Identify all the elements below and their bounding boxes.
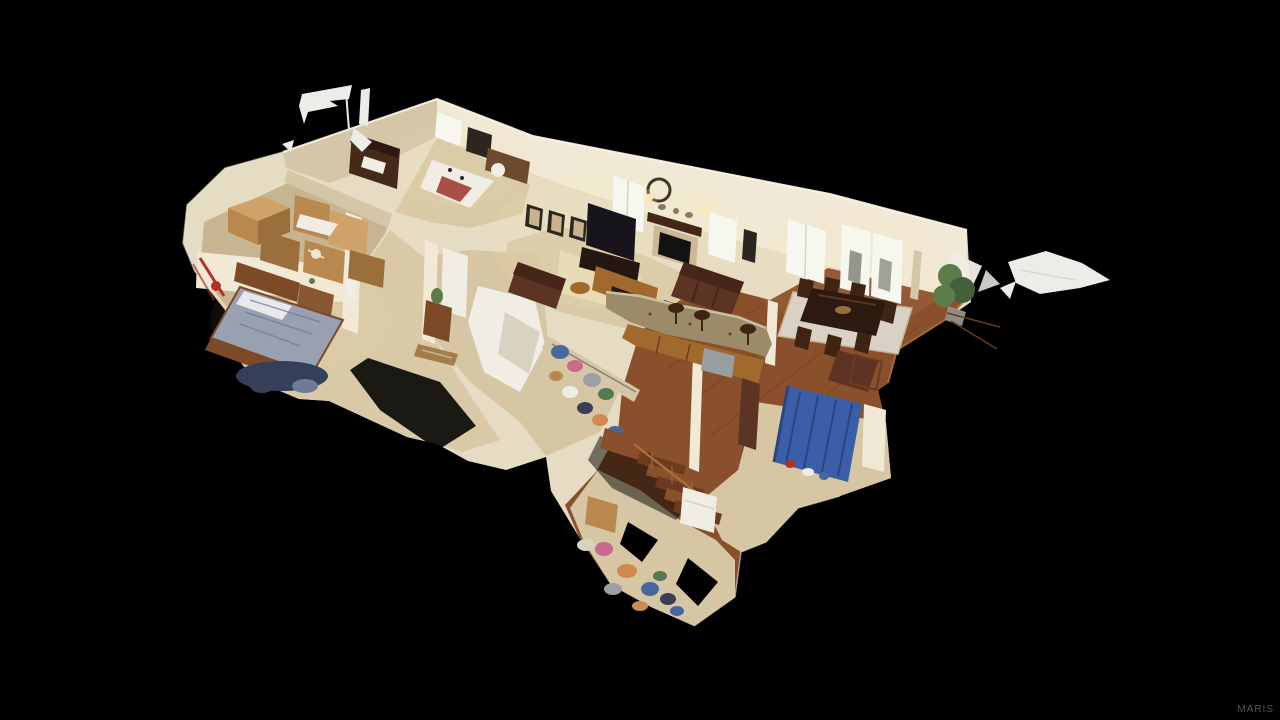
clothes-item <box>577 402 593 414</box>
granite-speckle <box>649 313 652 316</box>
clutter-item <box>660 593 676 605</box>
maris-watermark: MARIS <box>1237 704 1274 715</box>
french-door-glass-reflection <box>848 250 862 284</box>
clothes-item <box>567 360 583 372</box>
clutter-item <box>577 539 595 551</box>
clutter-item <box>641 582 659 596</box>
picture-frame-mat <box>573 220 584 238</box>
clothes-item <box>549 371 563 381</box>
red-item <box>211 281 221 291</box>
clutter-item <box>595 542 613 556</box>
lantern <box>431 288 443 304</box>
granite-speckle <box>689 323 692 326</box>
picture-frame <box>742 229 757 263</box>
office-chair <box>491 163 505 177</box>
clothes-item <box>551 345 569 359</box>
sconce-halo <box>696 201 712 217</box>
clothes-item <box>592 414 608 426</box>
dollhouse-3d-view: MARIS <box>0 0 1280 720</box>
clutter-item <box>604 583 622 595</box>
clutter-item <box>653 571 667 581</box>
mantel-decor <box>685 212 693 218</box>
mantel-decor <box>658 204 666 210</box>
blanket-pattern-spot <box>448 168 452 172</box>
french-door-glass-reflection <box>878 258 892 292</box>
cot-wall-fragment <box>862 404 886 472</box>
living-window-right <box>708 212 737 263</box>
cot-clutter <box>802 468 814 476</box>
window-mullion <box>805 225 806 278</box>
potted-plant <box>933 285 955 307</box>
clutter-item <box>670 606 684 616</box>
picture-frame-mat <box>529 208 540 227</box>
cot-clutter <box>819 472 829 480</box>
clothes-pile <box>250 379 274 393</box>
side-table <box>570 282 590 294</box>
granite-speckle <box>729 333 732 336</box>
cot-clutter <box>785 460 795 468</box>
table-centerpiece <box>835 306 851 314</box>
mantel-decor <box>673 208 679 214</box>
clutter-item <box>617 564 637 578</box>
clutter-item <box>632 601 648 611</box>
picture-frame-mat <box>551 214 562 233</box>
blanket-pattern-spot <box>460 176 464 180</box>
clothes-item <box>562 386 578 398</box>
dresser-bottles <box>309 278 315 284</box>
clothes-item <box>598 388 614 400</box>
sconce-halo <box>642 189 658 205</box>
clothes-item <box>583 373 601 387</box>
clothes-pile <box>292 379 318 393</box>
